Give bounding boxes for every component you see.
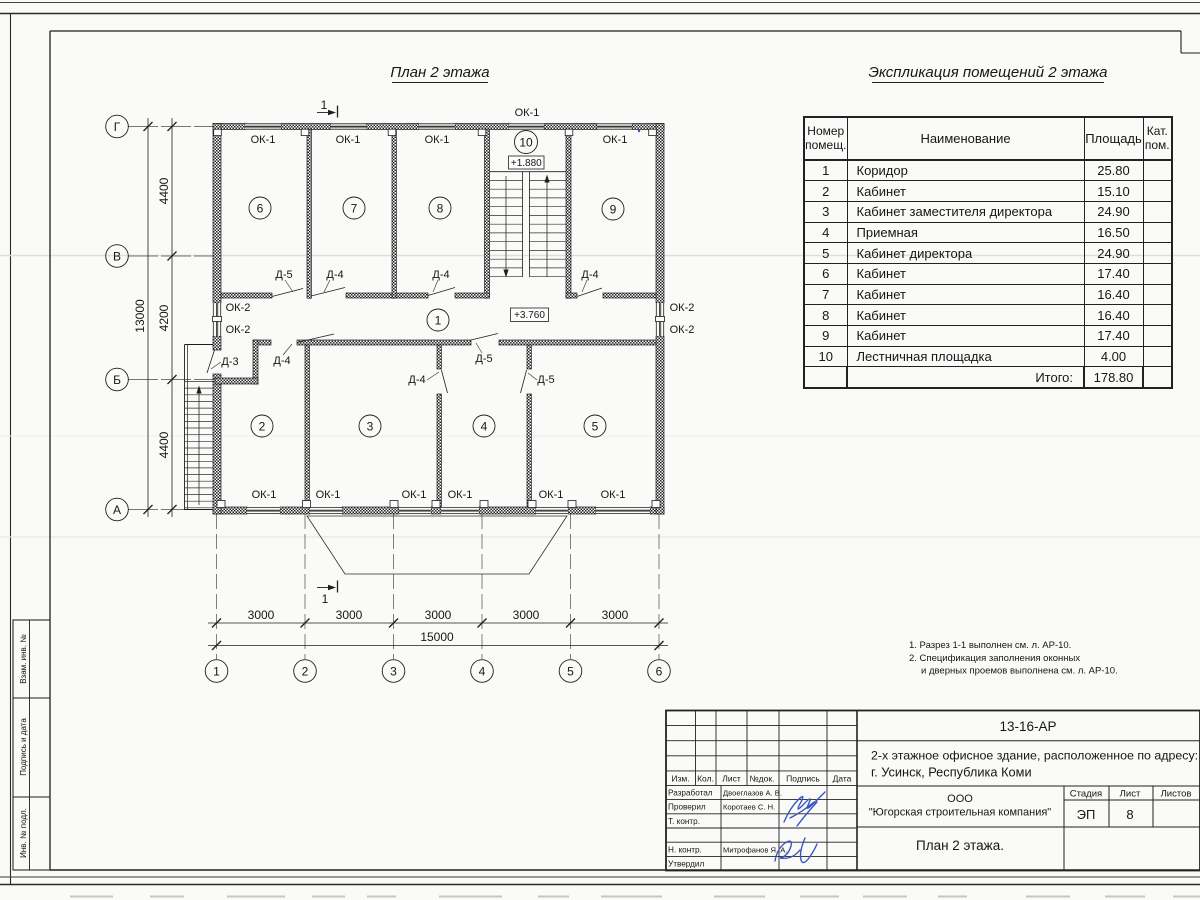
svg-text:Подпись: Подпись (786, 774, 820, 784)
svg-text:13-16-АР: 13-16-АР (999, 719, 1056, 734)
svg-text:План 2 этажа.: План 2 этажа. (916, 838, 1004, 853)
svg-text:Изм.: Изм. (671, 774, 689, 784)
svg-text:Лист: Лист (1120, 789, 1141, 800)
svg-text:2-х этажное офисное здание, ра: 2-х этажное офисное здание, расположенно… (871, 749, 1198, 763)
svg-text:Стадия: Стадия (1070, 789, 1102, 800)
svg-text:Дата: Дата (833, 774, 852, 784)
svg-text:Утвердил: Утвердил (668, 860, 704, 869)
svg-text:№док.: №док. (750, 774, 775, 784)
svg-text:8: 8 (1126, 807, 1133, 822)
svg-text:Проверил: Проверил (668, 803, 706, 812)
svg-text:Н. контр.: Н. контр. (668, 845, 702, 854)
svg-text:Кол.: Кол. (697, 774, 714, 784)
svg-text:Двоеглазов А. В.: Двоеглазов А. В. (723, 789, 782, 798)
svg-text:Лист: Лист (722, 774, 741, 784)
svg-text:ООО: ООО (947, 793, 973, 805)
svg-text:Разработал: Разработал (668, 789, 713, 798)
svg-text:г. Усинск, Республика Коми: г. Усинск, Республика Коми (871, 765, 1032, 780)
svg-text:"Югорская строительная компани: "Югорская строительная компания" (869, 807, 1052, 819)
svg-text:Т. контр.: Т. контр. (668, 817, 700, 826)
svg-text:Коротаев С. Н.: Коротаев С. Н. (723, 803, 775, 812)
svg-text:Листов: Листов (1161, 789, 1192, 800)
svg-text:ЭП: ЭП (1077, 807, 1096, 822)
